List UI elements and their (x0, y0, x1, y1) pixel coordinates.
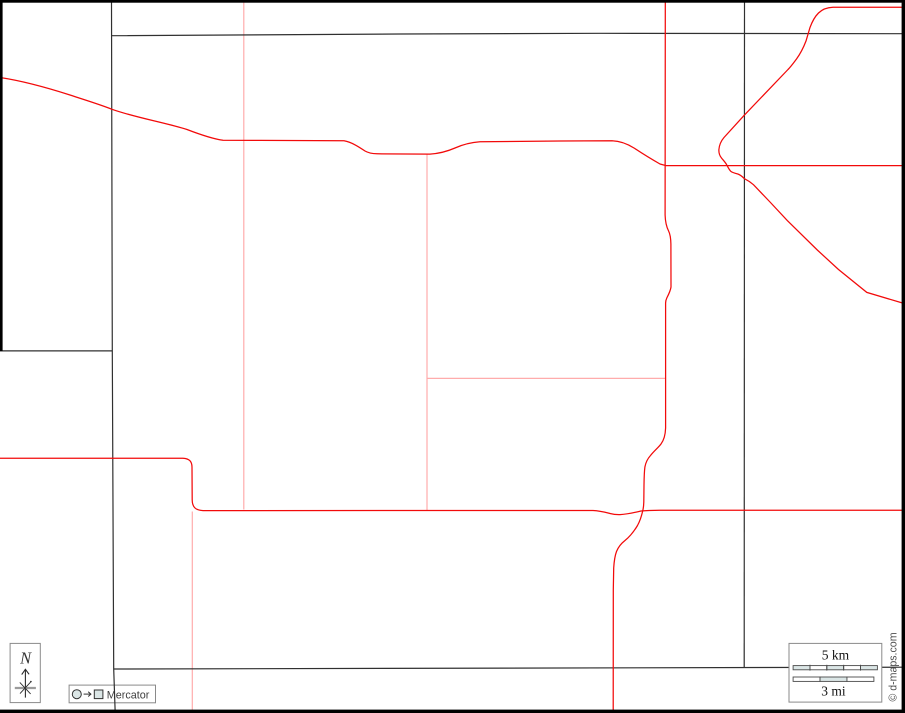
svg-text:Mercator: Mercator (107, 689, 150, 701)
svg-text:© d-maps.com: © d-maps.com (888, 632, 900, 701)
svg-text:N: N (19, 649, 32, 668)
svg-text:3 mi: 3 mi (821, 683, 846, 698)
svg-text:5 km: 5 km (822, 648, 850, 663)
